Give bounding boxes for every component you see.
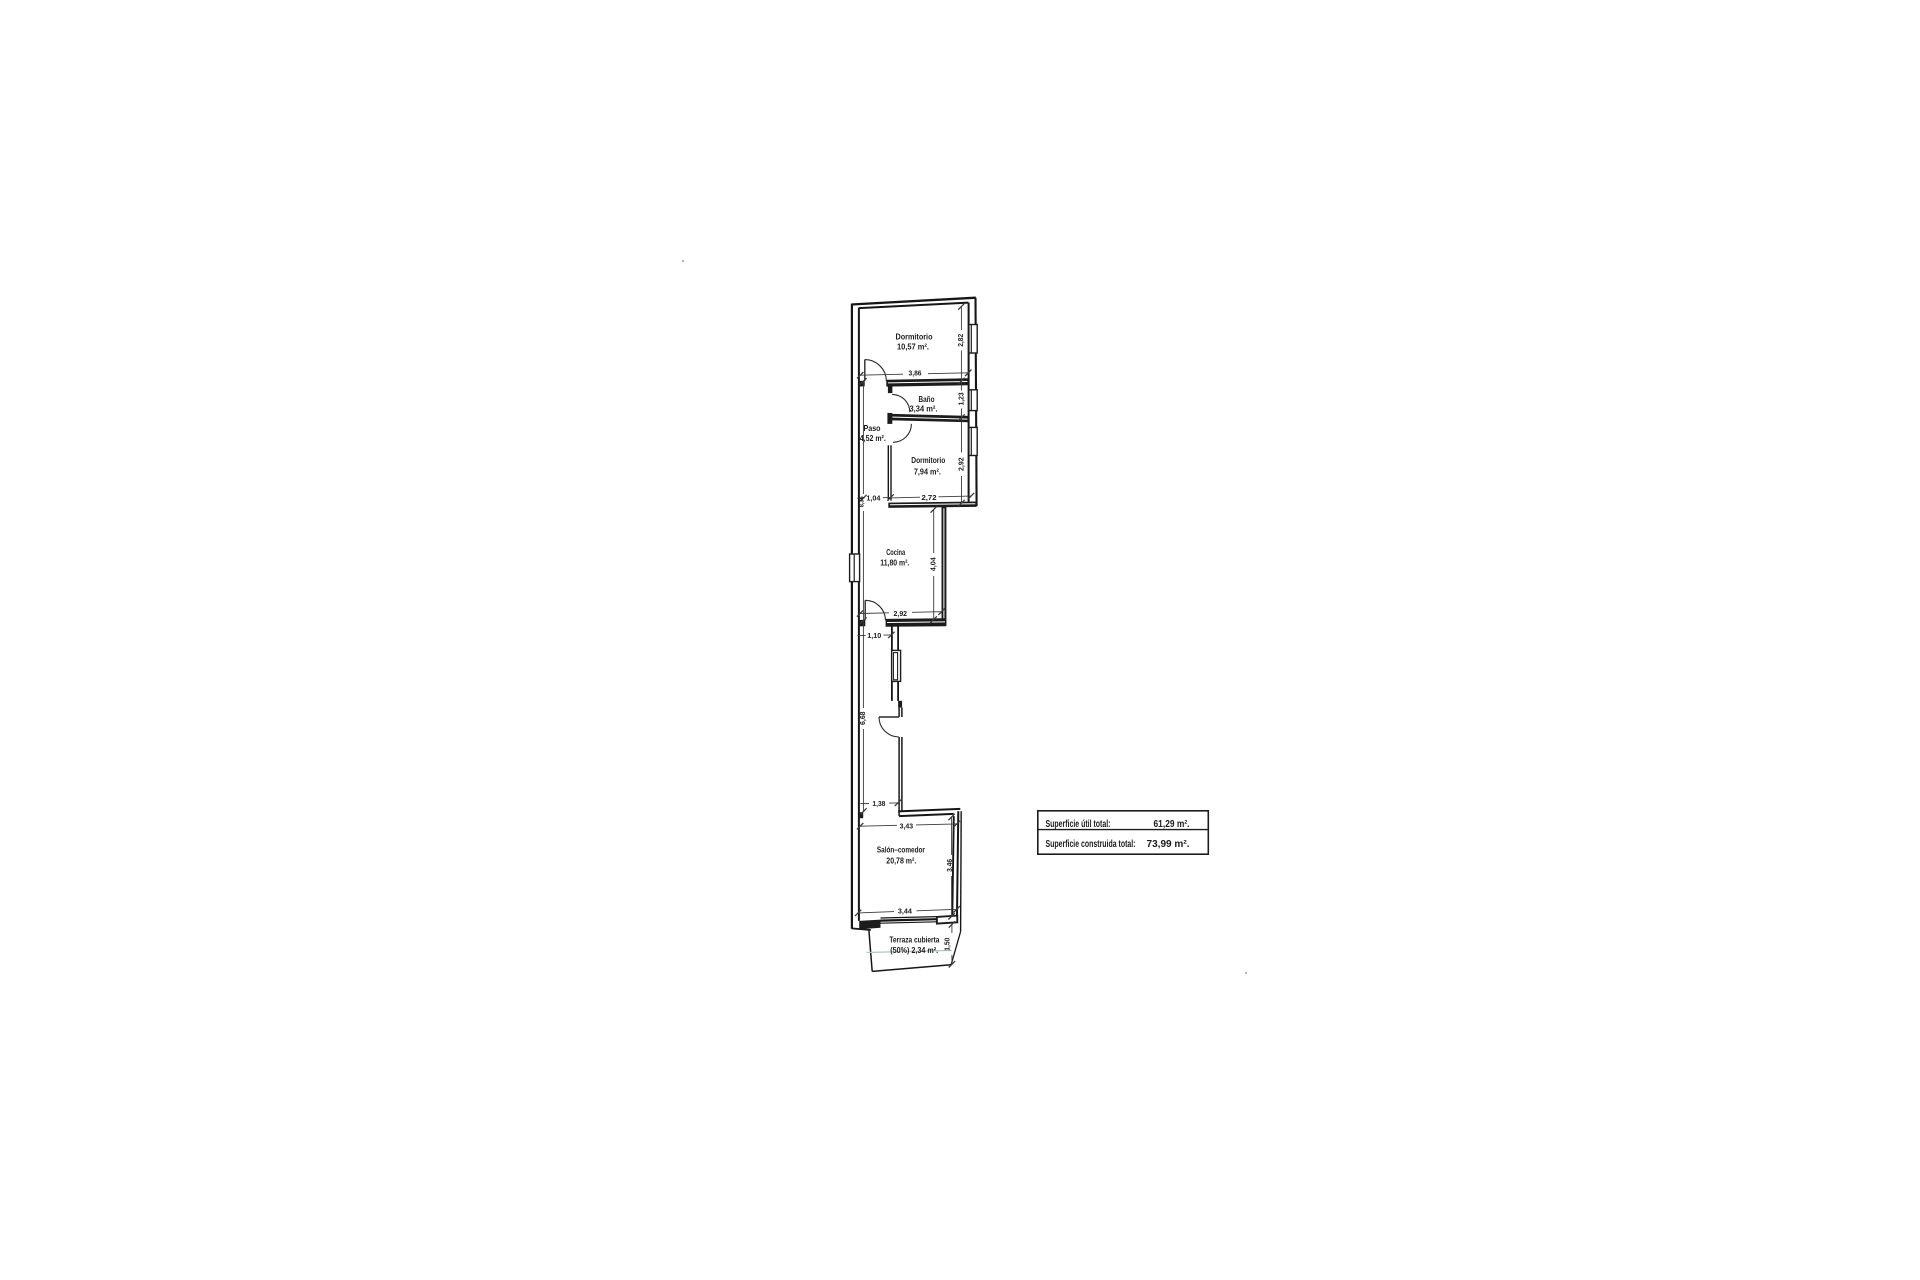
svg-text:Dormitorio: Dormitorio (896, 333, 933, 342)
svg-text:1,38: 1,38 (872, 799, 885, 808)
svg-text:7,94 m².: 7,94 m². (914, 467, 941, 476)
svg-text:20,78 m².: 20,78 m². (886, 857, 916, 866)
svg-text:2,72: 2,72 (922, 493, 937, 502)
svg-text:(50%) 2,34 m².: (50%) 2,34 m². (890, 946, 938, 955)
svg-text:2,92: 2,92 (956, 457, 965, 471)
svg-text:Baño: Baño (919, 395, 935, 404)
svg-text:3,43: 3,43 (900, 821, 914, 830)
svg-text:1,04: 1,04 (866, 493, 881, 502)
svg-text:Salón–comedor: Salón–comedor (877, 846, 926, 855)
svg-text:1,50: 1,50 (943, 938, 952, 951)
svg-text:Dormitorio: Dormitorio (911, 456, 945, 465)
svg-text:1,23: 1,23 (957, 392, 966, 405)
svg-text:11,80 m².: 11,80 m². (880, 559, 909, 568)
svg-text:3,44: 3,44 (898, 906, 913, 915)
svg-text:1,10: 1,10 (867, 631, 881, 640)
svg-text:4,04: 4,04 (929, 556, 938, 571)
svg-text:Cocina: Cocina (886, 548, 905, 557)
svg-text:Superficie construida total:: Superficie construida total: (1046, 839, 1136, 850)
svg-text:2,82: 2,82 (956, 334, 965, 347)
svg-text:Superficie útil total:: Superficie útil total: (1046, 819, 1111, 830)
svg-text:Terraza cubierta: Terraza cubierta (889, 935, 939, 944)
svg-text:8,36: 8,36 (859, 496, 866, 507)
svg-text:3,34 m².: 3,34 m². (910, 405, 938, 414)
svg-text:10,57 m².: 10,57 m². (897, 343, 929, 352)
svg-text:61,29 m².: 61,29 m². (1154, 819, 1190, 830)
svg-text:73,99 m².: 73,99 m². (1147, 839, 1190, 850)
svg-text:6,68: 6,68 (858, 711, 867, 725)
svg-text:2,92: 2,92 (894, 609, 908, 618)
svg-text:4,52 m².: 4,52 m². (860, 434, 886, 443)
svg-text:Paso: Paso (864, 424, 881, 433)
svg-text:3,86: 3,86 (909, 368, 922, 377)
svg-text:3,46: 3,46 (945, 859, 954, 872)
